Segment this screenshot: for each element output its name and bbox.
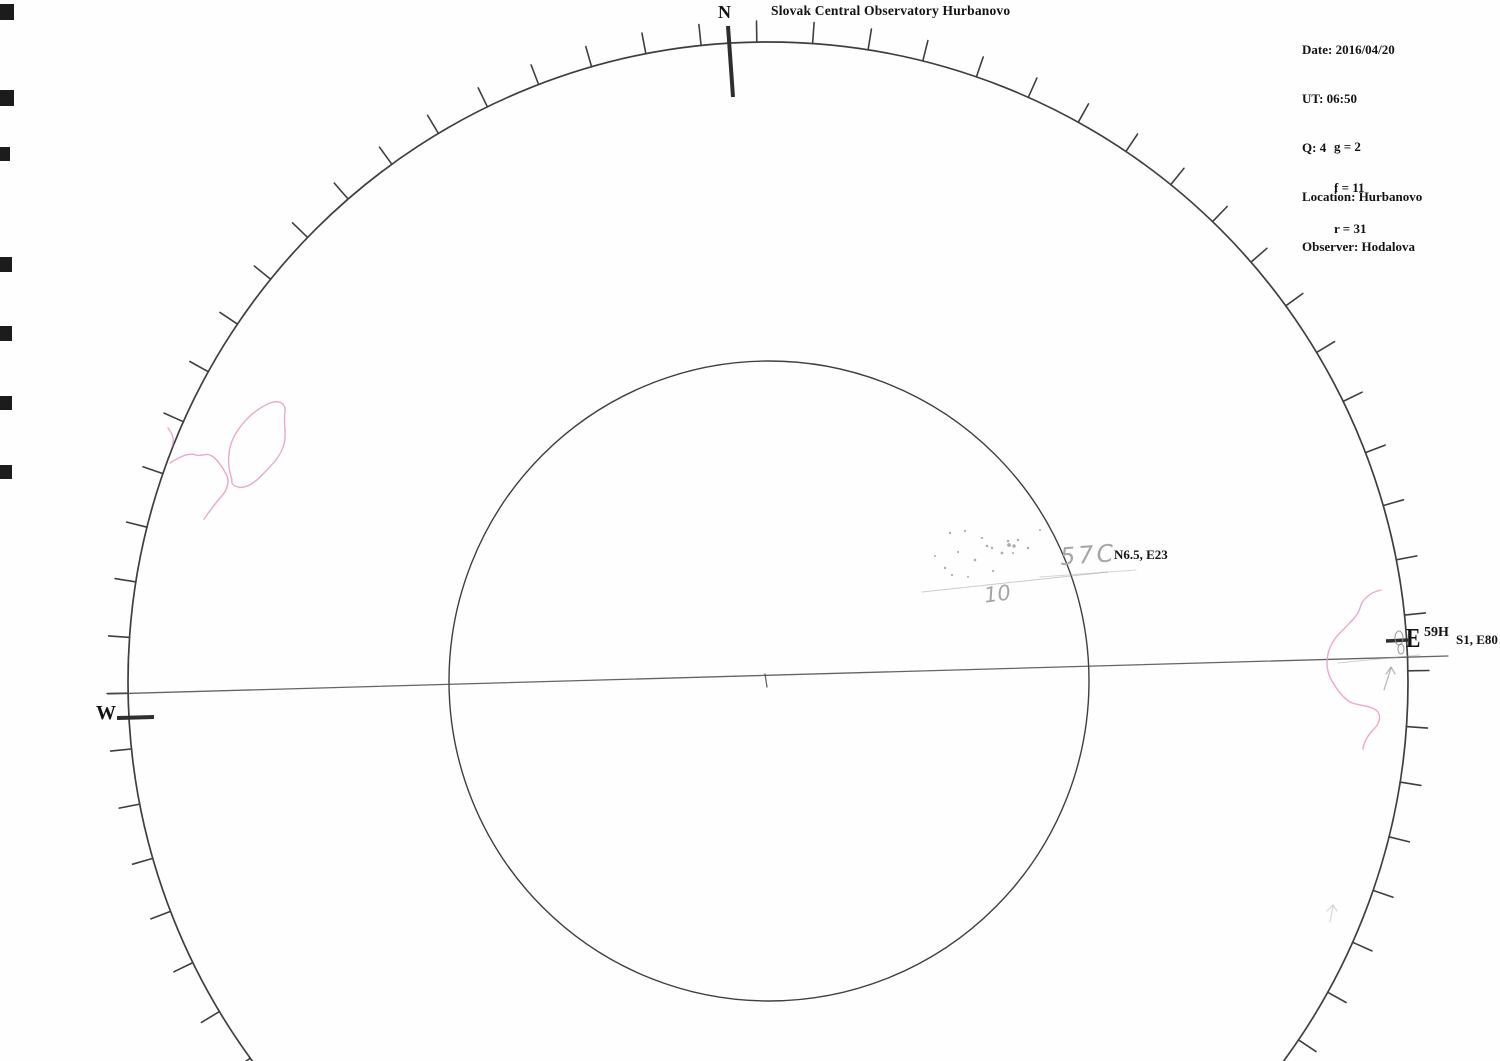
sunspot-dot [1007,543,1011,547]
degree-tick [868,29,871,50]
degree-tick [1171,168,1184,184]
degree-tick [923,41,928,61]
sunspot-dot [1039,529,1041,531]
degree-tick [699,25,701,46]
degree-tick [190,362,208,372]
degree-tick [293,223,308,238]
degree-tick [254,266,270,279]
sunspot-dot [934,555,936,557]
degree-tick [1383,500,1403,506]
scanned-observation-sheet: Slovak Central Observatory Hurbanovo Dat… [0,0,1500,1061]
degree-tick [1251,248,1267,262]
degree-tick [1389,837,1409,842]
scan-edge-artifact [0,257,12,272]
sunspot-counts: g = 2 f = 11 r = 31 [1334,112,1366,264]
sunspot-dot [1012,544,1015,547]
sunspot-dot [964,530,966,532]
degree-tick [143,467,163,474]
scan-edge-artifact [0,90,14,106]
degree-tick [1343,392,1362,401]
count-r-line: r = 31 [1334,222,1366,236]
degree-tick [201,1012,219,1023]
degree-tick [1405,613,1426,615]
degree-tick [531,65,539,85]
group57-underline-2 [1040,570,1136,577]
degree-tick [976,57,983,77]
scan-edge-artifact [0,396,12,410]
sunspot-dot [957,551,959,553]
metadata-ut-line: UT: 06:50 [1302,91,1422,107]
degree-tick [1366,445,1386,453]
degree-tick [478,88,487,107]
scan-edge-artifact [0,147,10,161]
faculae-left-blob [229,402,286,488]
sunspot-dot [1007,540,1010,543]
degree-tick [1126,134,1138,151]
north-marker-line [728,26,733,97]
degree-tick [1406,727,1427,729]
scan-edge-artifact [0,465,12,479]
degree-tick [151,911,171,919]
sunspot-dot [1012,552,1014,554]
degree-tick [1400,782,1421,785]
degree-tick [334,183,348,199]
sunspot-dot [981,537,983,539]
degree-tick [133,858,153,864]
degree-tick [813,23,815,44]
degree-tick [1353,942,1372,951]
degree-tick [1078,104,1088,122]
degree-tick [1028,78,1037,97]
degree-tick [115,579,136,582]
sunspot-dot [992,570,994,572]
degree-tick [642,33,646,54]
faculae-right-squiggle [1327,590,1381,749]
degree-tick [1213,207,1228,222]
scan-edge-artifact [0,4,14,20]
faculae-left-squiggle [170,454,228,519]
sun-chart-svg [0,0,1500,1061]
count-f-line: f = 11 [1334,181,1366,195]
limb-sunspot-scribble [1395,631,1403,645]
degree-tick [380,147,392,164]
faculae-left-hook [168,428,173,446]
east-marker-line [1386,640,1408,641]
sunspot-dot [1027,547,1029,549]
sunspot-dot [1001,552,1004,555]
degree-tick [586,47,592,67]
degree-tick [1328,992,1346,1002]
degree-tick [1317,342,1335,353]
degree-tick [119,804,140,808]
degree-tick [1286,294,1303,306]
limb-sunspot-scribble [1398,644,1404,654]
equator-line [108,656,1448,694]
north-label: N [718,2,731,23]
sunspot-dot [951,574,953,576]
group59-coordinates: S1, E80 [1456,632,1498,648]
sunspot-dot [1017,539,1019,541]
degree-tick [174,963,193,972]
sunspot-dot [986,545,989,548]
east-label: E [1406,623,1420,654]
group57-handwritten-id: 57C [1059,539,1117,571]
west-marker-line [117,717,154,718]
degree-tick [127,522,147,527]
west-label: W [96,702,116,725]
group57-underline [922,572,1108,592]
group57-area-note: 10 [983,580,1012,607]
sunspot-dot [974,559,977,562]
group59-id: 59H [1424,625,1449,641]
degree-tick [1373,890,1393,897]
metadata-date-line: Date: 2016/04/20 [1302,42,1422,58]
solar-limb-circle [128,42,1408,1061]
page-title: Slovak Central Observatory Hurbanovo [771,3,1010,19]
degree-tick [109,636,130,638]
scan-edge-artifact [0,326,12,341]
degree-tick [1299,1040,1316,1052]
sunspot-dot [949,532,951,534]
degree-tick [1396,556,1417,560]
sunspot-dot [967,576,969,578]
degree-tick [428,115,439,133]
degree-tick [220,312,237,324]
count-g-line: g = 2 [1334,140,1366,154]
degree-tick [111,749,132,751]
degree-tick [164,413,183,422]
group57-coordinates: N6.5, E23 [1114,547,1168,563]
sunspot-dot [991,547,993,549]
sunspot-dot [944,567,946,569]
